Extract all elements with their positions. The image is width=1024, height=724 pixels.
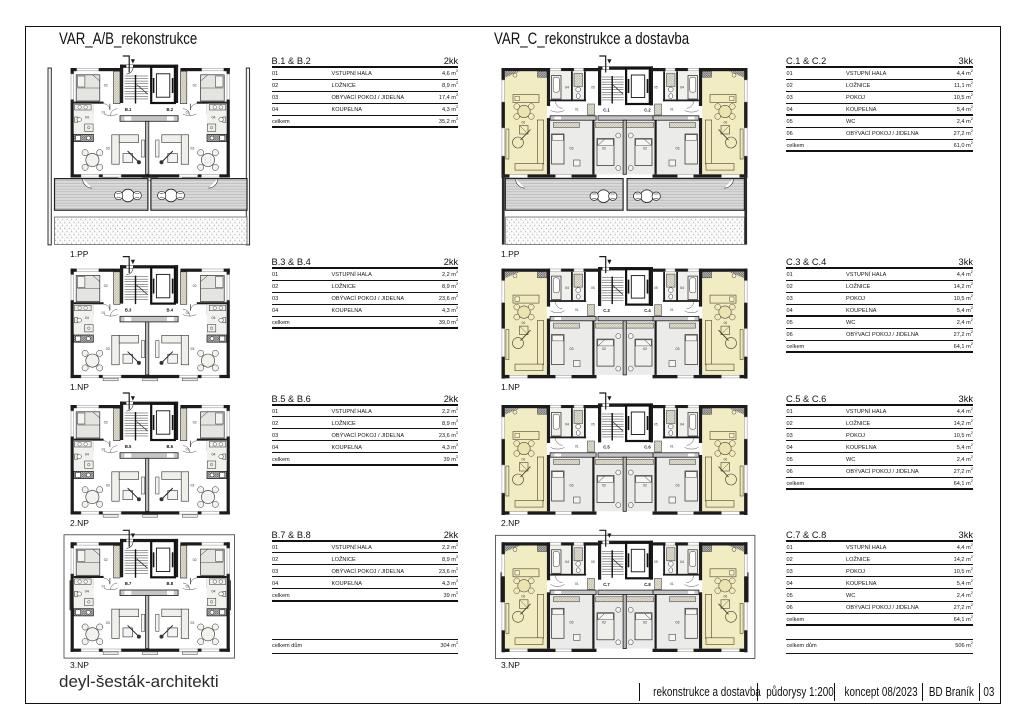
svg-text:02: 02: [193, 421, 197, 425]
svg-text:C.2: C.2: [644, 108, 651, 113]
svg-text:05: 05: [591, 560, 595, 564]
svg-text:03: 03: [190, 147, 194, 151]
svg-text:01: 01: [186, 311, 190, 315]
svg-text:02: 02: [104, 421, 108, 425]
svg-text:04: 04: [212, 590, 216, 594]
svg-text:01: 01: [102, 447, 106, 451]
svg-text:C.4: C.4: [644, 308, 651, 313]
svg-text:04: 04: [212, 452, 216, 456]
svg-text:01: 01: [575, 582, 579, 586]
svg-text:04: 04: [680, 86, 684, 90]
svg-text:05: 05: [591, 286, 595, 290]
svg-text:01: 01: [102, 110, 106, 114]
svg-text:B.8: B.8: [167, 581, 174, 586]
svg-text:02: 02: [602, 483, 606, 487]
svg-text:01: 01: [186, 585, 190, 589]
svg-text:C.8: C.8: [644, 582, 651, 587]
svg-text:02: 02: [193, 558, 197, 562]
svg-text:05: 05: [591, 423, 595, 427]
svg-text:03: 03: [570, 347, 574, 351]
svg-text:03: 03: [106, 484, 110, 488]
svg-text:01: 01: [186, 110, 190, 114]
svg-text:03: 03: [570, 146, 574, 150]
svg-text:02: 02: [104, 84, 108, 88]
svg-text:04: 04: [85, 590, 89, 594]
svg-text:03: 03: [570, 483, 574, 487]
svg-text:04: 04: [212, 115, 216, 119]
svg-text:B.6: B.6: [167, 444, 174, 449]
svg-text:03: 03: [570, 621, 574, 625]
svg-text:04: 04: [565, 86, 569, 90]
svg-text:04: 04: [85, 452, 89, 456]
svg-text:02: 02: [104, 284, 108, 288]
svg-text:02: 02: [193, 84, 197, 88]
svg-text:C.7: C.7: [603, 582, 610, 587]
svg-text:B.7: B.7: [125, 581, 132, 586]
svg-text:01: 01: [575, 108, 579, 112]
svg-text:03: 03: [676, 621, 680, 625]
svg-text:06: 06: [724, 457, 728, 461]
svg-text:05: 05: [591, 86, 595, 90]
svg-text:01: 01: [670, 108, 674, 112]
svg-text:02: 02: [643, 146, 647, 150]
svg-text:01: 01: [575, 445, 579, 449]
svg-text:04: 04: [85, 316, 89, 320]
svg-text:C.1: C.1: [603, 108, 610, 113]
svg-text:01: 01: [102, 585, 106, 589]
svg-text:C.3: C.3: [603, 308, 610, 313]
svg-text:02: 02: [193, 284, 197, 288]
svg-text:04: 04: [212, 316, 216, 320]
svg-text:01: 01: [102, 311, 106, 315]
svg-text:01: 01: [186, 447, 190, 451]
svg-text:03: 03: [190, 484, 194, 488]
svg-text:04: 04: [85, 115, 89, 119]
svg-text:04: 04: [680, 560, 684, 564]
svg-text:02: 02: [602, 347, 606, 351]
svg-text:06: 06: [522, 120, 526, 124]
svg-text:04: 04: [565, 423, 569, 427]
svg-text:05: 05: [654, 560, 658, 564]
svg-text:03: 03: [190, 347, 194, 351]
svg-text:03: 03: [106, 621, 110, 625]
svg-text:02: 02: [643, 347, 647, 351]
svg-text:C.6: C.6: [644, 445, 651, 450]
svg-text:03: 03: [106, 147, 110, 151]
svg-text:06: 06: [724, 321, 728, 325]
svg-text:03: 03: [190, 621, 194, 625]
svg-text:01: 01: [670, 582, 674, 586]
svg-text:03: 03: [106, 347, 110, 351]
svg-text:02: 02: [602, 146, 606, 150]
svg-text:05: 05: [654, 286, 658, 290]
svg-text:02: 02: [104, 558, 108, 562]
svg-text:01: 01: [670, 445, 674, 449]
svg-text:03: 03: [676, 483, 680, 487]
svg-text:05: 05: [654, 423, 658, 427]
svg-text:03: 03: [676, 146, 680, 150]
svg-text:02: 02: [643, 483, 647, 487]
svg-text:B.3: B.3: [125, 307, 132, 312]
svg-text:01: 01: [670, 308, 674, 312]
svg-text:B.2: B.2: [167, 107, 174, 112]
svg-text:C.5: C.5: [603, 445, 610, 450]
svg-text:04: 04: [565, 286, 569, 290]
svg-text:B.1: B.1: [125, 107, 132, 112]
svg-text:06: 06: [724, 595, 728, 599]
svg-text:06: 06: [522, 321, 526, 325]
svg-text:04: 04: [565, 560, 569, 564]
svg-text:02: 02: [643, 621, 647, 625]
svg-text:05: 05: [654, 86, 658, 90]
svg-text:04: 04: [680, 423, 684, 427]
svg-text:02: 02: [602, 621, 606, 625]
svg-text:03: 03: [676, 347, 680, 351]
svg-text:04: 04: [680, 286, 684, 290]
svg-text:06: 06: [522, 457, 526, 461]
svg-text:B.4: B.4: [167, 307, 174, 312]
svg-text:06: 06: [724, 120, 728, 124]
svg-text:06: 06: [522, 595, 526, 599]
svg-text:B.5: B.5: [125, 444, 132, 449]
svg-text:01: 01: [575, 308, 579, 312]
